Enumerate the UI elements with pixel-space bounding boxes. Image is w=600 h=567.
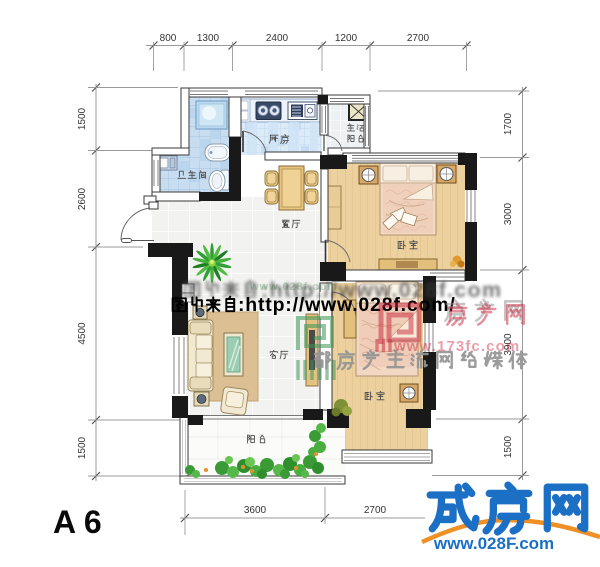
svg-text:2700: 2700 <box>364 505 387 516</box>
svg-text:3000: 3000 <box>503 202 514 225</box>
svg-text:1200: 1200 <box>335 33 358 44</box>
svg-text:800: 800 <box>160 33 177 44</box>
svg-text:3600: 3600 <box>244 505 267 516</box>
svg-text:2600: 2600 <box>77 187 88 210</box>
svg-text:4500: 4500 <box>77 322 88 345</box>
svg-text:1300: 1300 <box>197 33 220 44</box>
svg-text:2400: 2400 <box>266 33 289 44</box>
svg-text:A 6: A 6 <box>53 504 102 540</box>
svg-text:www.028F.com: www.028F.com <box>433 534 554 553</box>
svg-text:1500: 1500 <box>77 107 88 130</box>
svg-text:1500: 1500 <box>503 435 514 458</box>
svg-text:1500: 1500 <box>77 436 88 459</box>
svg-text:2700: 2700 <box>407 33 430 44</box>
svg-text:1700: 1700 <box>503 112 514 135</box>
svg-text::http://www.028f.com/: :http://www.028f.com/ <box>238 294 456 316</box>
